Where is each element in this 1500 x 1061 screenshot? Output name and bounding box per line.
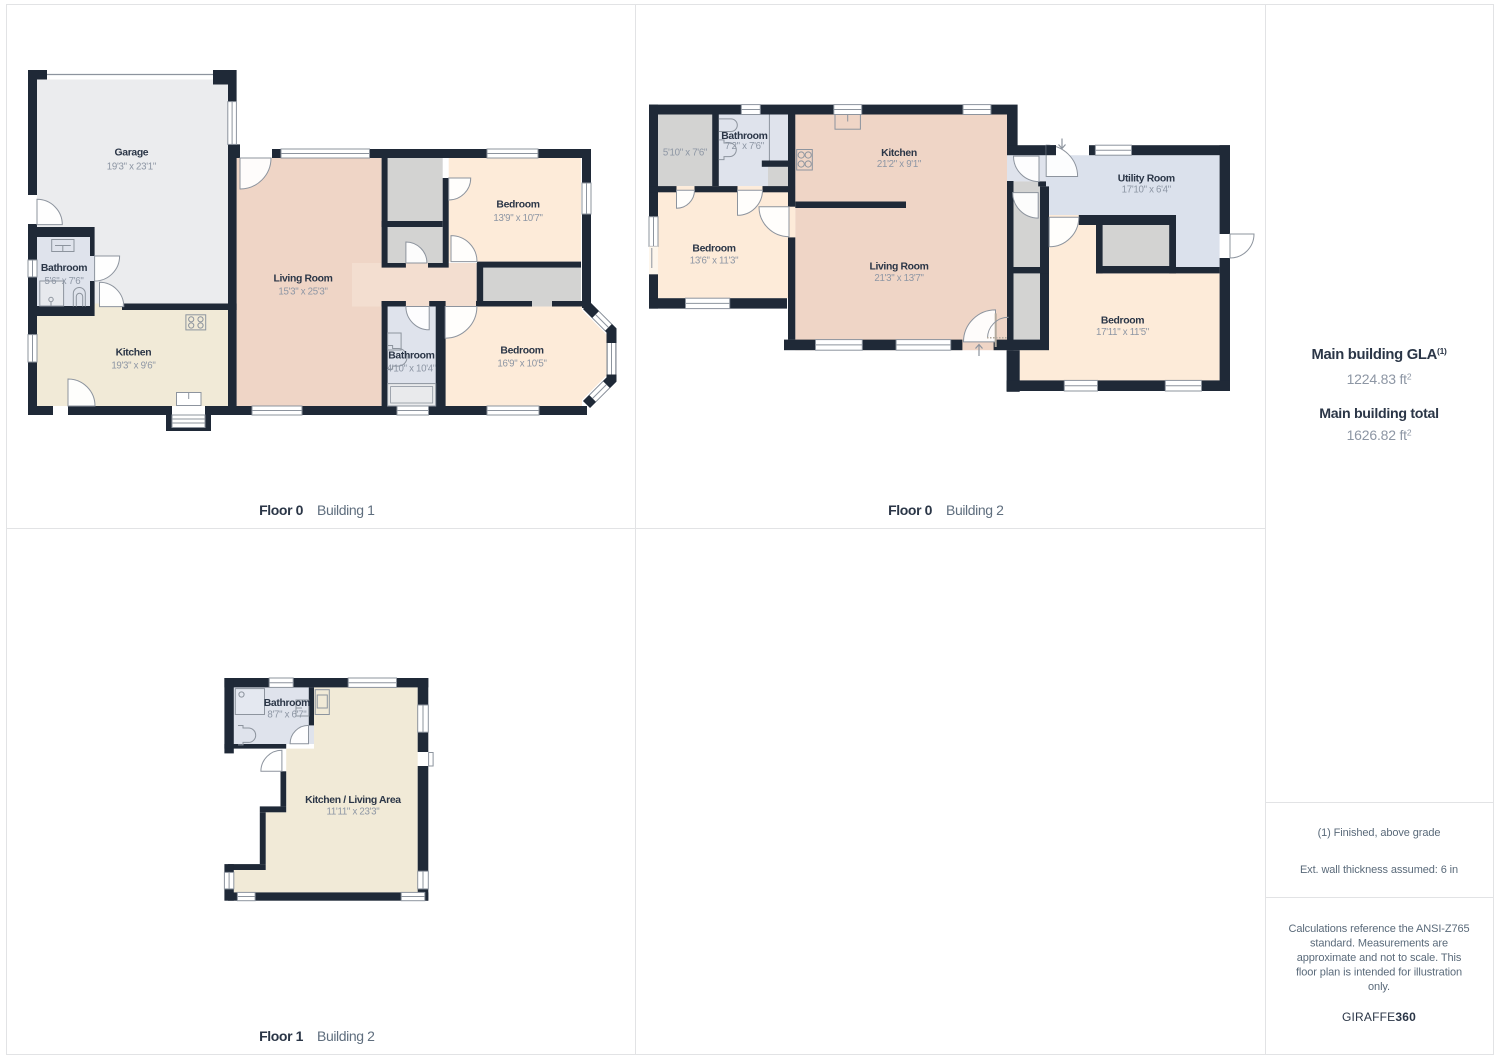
svg-text:17'10" x 6'4": 17'10" x 6'4": [1122, 185, 1172, 196]
svg-text:21'2" x 9'1": 21'2" x 9'1": [877, 159, 922, 170]
svg-text:Bathroom: Bathroom: [264, 698, 310, 709]
svg-text:Building 2: Building 2: [946, 502, 1004, 518]
svg-text:Floor 0: Floor 0: [259, 502, 303, 518]
svg-text:11'11" x 23'3": 11'11" x 23'3": [326, 806, 380, 817]
svg-text:(1) Finished, above grade: (1) Finished, above grade: [1318, 827, 1441, 839]
svg-text:21'3" x 13'7": 21'3" x 13'7": [874, 273, 924, 284]
svg-text:Floor 1: Floor 1: [259, 1028, 303, 1044]
svg-text:1224.83 ft2: 1224.83 ft2: [1347, 371, 1412, 387]
svg-text:5'6" x 7'6": 5'6" x 7'6": [44, 276, 84, 287]
svg-text:19'3" x 23'1": 19'3" x 23'1": [107, 162, 157, 173]
svg-text:Floor 0: Floor 0: [888, 502, 932, 518]
svg-text:Kitchen / Living Area: Kitchen / Living Area: [305, 795, 401, 806]
svg-text:floor plan is intended for ill: floor plan is intended for illustration: [1296, 967, 1462, 979]
svg-text:Main building GLA(1): Main building GLA(1): [1311, 346, 1447, 363]
svg-text:Kitchen: Kitchen: [116, 348, 152, 359]
svg-text:13'6" x 11'3": 13'6" x 11'3": [690, 256, 739, 267]
svg-text:Garage: Garage: [115, 148, 149, 159]
svg-text:Bathroom: Bathroom: [388, 351, 434, 362]
svg-text:Kitchen: Kitchen: [881, 148, 917, 159]
svg-text:4'10" x 10'4": 4'10" x 10'4": [387, 364, 437, 375]
svg-text:8'7" x 6'7": 8'7" x 6'7": [267, 710, 307, 721]
svg-text:Main building total: Main building total: [1319, 406, 1439, 422]
svg-text:Utility Room: Utility Room: [1118, 173, 1175, 184]
svg-text:Bathroom: Bathroom: [41, 263, 87, 274]
svg-text:19'3" x 9'6": 19'3" x 9'6": [111, 361, 156, 372]
svg-text:GIRAFFE360: GIRAFFE360: [1342, 1010, 1416, 1024]
svg-text:Calculations reference the ANS: Calculations reference the ANSI-Z765: [1288, 923, 1469, 935]
svg-text:13'9" x 10'7": 13'9" x 10'7": [493, 213, 543, 224]
svg-text:16'9" x 10'5": 16'9" x 10'5": [497, 359, 547, 370]
svg-text:Bedroom: Bedroom: [496, 200, 539, 211]
svg-text:Bedroom: Bedroom: [1101, 316, 1144, 327]
svg-text:5'10" x 7'6": 5'10" x 7'6": [663, 148, 708, 159]
svg-text:Building 2: Building 2: [317, 1028, 375, 1044]
svg-text:Living Room: Living Room: [273, 274, 332, 285]
svg-text:15'3" x 25'3": 15'3" x 25'3": [278, 287, 328, 298]
svg-text:17'11" x 11'5": 17'11" x 11'5": [1096, 327, 1150, 338]
svg-text:Living Room: Living Room: [869, 262, 928, 273]
svg-text:Ext. wall thickness assumed: 6: Ext. wall thickness assumed: 6 in: [1300, 864, 1458, 876]
svg-text:standard. Measurements are: standard. Measurements are: [1310, 938, 1448, 950]
svg-text:approximate and not to scale.: approximate and not to scale. This: [1297, 952, 1462, 964]
svg-text:1626.82 ft2: 1626.82 ft2: [1347, 427, 1412, 443]
svg-text:Bedroom: Bedroom: [500, 346, 543, 357]
svg-text:Building 1: Building 1: [317, 502, 375, 518]
svg-text:Bedroom: Bedroom: [692, 244, 735, 255]
svg-text:7'2" x 7'6": 7'2" x 7'6": [725, 141, 765, 152]
svg-text:only.: only.: [1368, 981, 1390, 993]
